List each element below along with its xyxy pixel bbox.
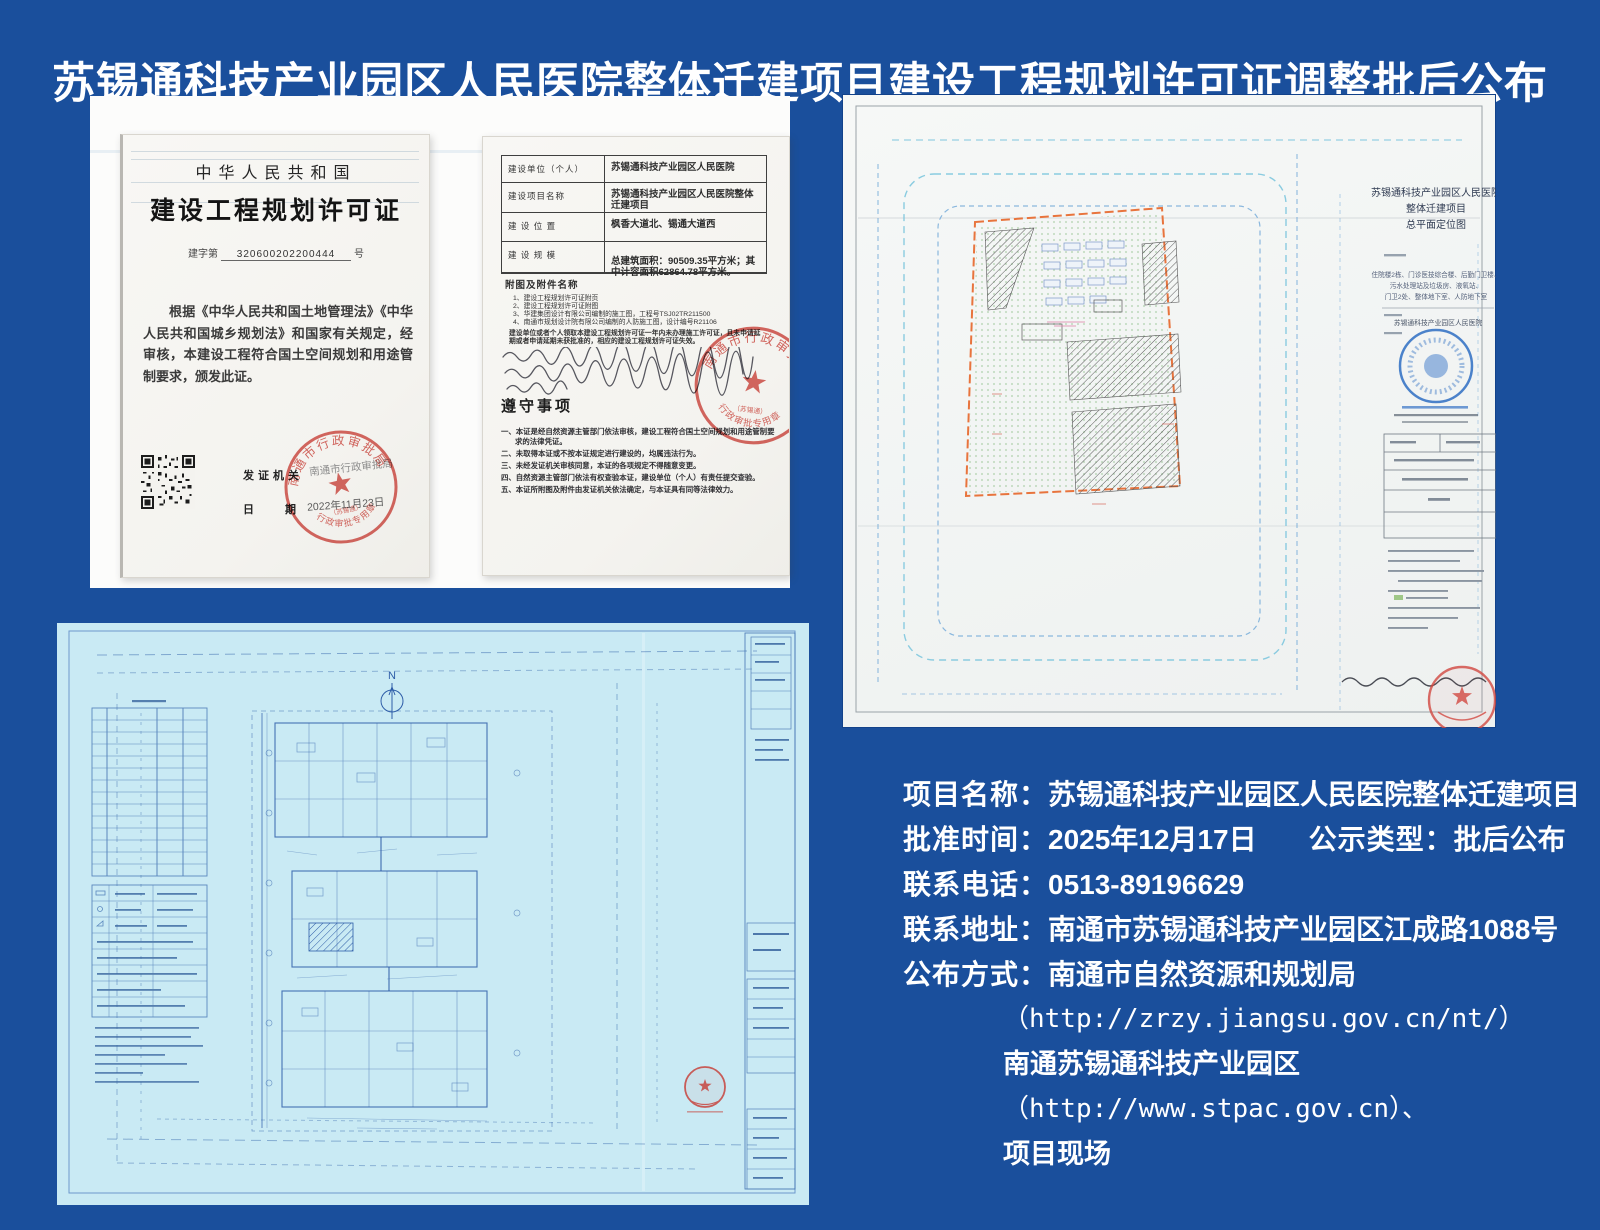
info-label: 公布方式：: [903, 959, 1048, 990]
svg-text:行政审批专用章: 行政审批专用章: [313, 498, 381, 534]
row-label: 建设单位（个人）: [502, 156, 605, 182]
plan-desc-line: 门卫2处、整体地下室、人防地下室: [1385, 292, 1488, 301]
svg-text:行政审批专用章: 行政审批专用章: [714, 400, 784, 433]
certificate-country: 中华人民共和国: [123, 159, 429, 183]
certificate-cover-page: 中华人民共和国 建设工程规划许可证 建字第 320600202200444 号 …: [120, 134, 430, 578]
table-row: 建 设 位 置 枫香大道北、锡通大道西: [502, 213, 766, 242]
north-arrow-icon: N: [381, 670, 403, 719]
info-label: 项目名称：: [903, 779, 1048, 810]
approval-stamp-icon: [685, 1067, 725, 1113]
plan-title-line: 苏锡通科技产业园区人民医院: [1371, 186, 1496, 199]
certificate-body-text: 根据《中华人民共和国土地管理法》《中华人民共和国城乡规划法》和国家有关规定，经审…: [143, 301, 413, 387]
info-value: 2025年12月17日: [1048, 824, 1257, 855]
seal-bottom-text: 行政审批专用章: [313, 498, 381, 534]
row-label: 建 设 位 置: [502, 213, 605, 241]
row-label: 建设项目名称: [502, 183, 605, 212]
info-row-address: 联系地址：南通市苏锡通科技产业园区江成路1088号: [903, 907, 1483, 952]
publish-url-stpac[interactable]: （http://www.stpac.gov.cn）、: [1003, 1087, 1483, 1132]
table-row: 建设项目名称 苏锡通科技产业园区人民医院整体迁建项目: [502, 183, 766, 213]
info-value: 0513-89196629: [1048, 869, 1244, 900]
certificate-number: 320600202200444: [221, 249, 351, 261]
road-dashes: [97, 651, 757, 1169]
permit-certificate-scan: 中华人民共和国 建设工程规划许可证 建字第 320600202200444 号 …: [90, 96, 790, 588]
official-seal-icon: 南通市行政审批局 行政审批专用章 （苏锡通）: [270, 416, 412, 558]
rule-item: 五、本证所附图及附件由发证机关依法确定，与本证具有同等法律效力。: [501, 485, 775, 495]
site-buildings: [968, 212, 1181, 504]
certificate-form-page: 建设单位（个人） 苏锡通科技产业园区人民医院 建设项目名称 苏锡通科技产业园区人…: [482, 136, 790, 576]
rules-title: 遵守事项: [501, 395, 573, 416]
info-label: 批准时间：: [903, 824, 1048, 855]
certificate-number-prefix: 建字第: [188, 249, 218, 260]
permit-table: 建设单位（个人） 苏锡通科技产业园区人民医院 建设项目名称 苏锡通科技产业园区人…: [501, 155, 767, 274]
review-stamp-icon: [1394, 330, 1478, 423]
scan-fold-line: [642, 633, 645, 1191]
info-label: 联系电话：: [903, 869, 1048, 900]
certificate-number-suffix: 号: [354, 249, 364, 260]
publish-site-field: 项目现场: [1003, 1132, 1483, 1177]
attachments-label: 附图及附件名称: [505, 277, 579, 291]
ruled-line: [131, 151, 419, 152]
site-plan-scan: 苏锡通科技产业园区人民医院 整体迁建项目 总平面定位图 住院楼2栋、门诊医技综合…: [842, 94, 1496, 728]
plan-title-block: 苏锡通科技产业园区人民医院 整体迁建项目 总平面定位图 住院楼2栋、门诊医技综合…: [1342, 186, 1496, 728]
plan-title-line: 总平面定位图: [1406, 218, 1466, 231]
attachment-item: 1、建设工程规划许可证附页: [513, 295, 775, 303]
blueprint-title-block: [745, 633, 795, 1189]
sheet-frame: [69, 631, 795, 1193]
certificate-number-line: 建字第 320600202200444 号: [123, 245, 429, 260]
announcement-info: 项目名称：苏锡通科技产业园区人民医院整体迁建项目 批准时间：2025年12月17…: [903, 772, 1483, 1177]
row-label: 建 设 规 模: [502, 242, 605, 272]
plan-unit: 苏锡通科技产业园区人民医院: [1394, 318, 1483, 327]
site-plan-drawing: 苏锡通科技产业园区人民医院 整体迁建项目 总平面定位图 住院楼2栋、门诊医技综合…: [842, 94, 1496, 728]
row-value: 总建筑面积：90509.35平方米；其中计容面积62864.78平方米。: [605, 242, 766, 272]
official-seal-icon: 南通市行政审批局 行政审批专用章 （苏锡通）: [683, 315, 790, 456]
seal-bottom-text: 行政审批专用章: [714, 400, 784, 433]
legend-green-swatch: [1394, 595, 1403, 600]
seal-sub-text: （苏锡通）: [733, 403, 768, 417]
table-row: 建设单位（个人） 苏锡通科技产业园区人民医院: [502, 156, 766, 183]
rule-item: 三、未经发证机关审核同意，本证的各项规定不得随意变更。: [501, 461, 775, 471]
info-row-approval-date: 批准时间：2025年12月17日公示类型：批后公布: [903, 817, 1483, 862]
rule-item: 四、自然资源主管部门依法有权查验本证，建设单位（个人）有责任提交查验。: [501, 473, 775, 483]
info-value: 南通市苏锡通科技产业园区江成路1088号: [1048, 914, 1558, 945]
info-row-publish-method: 公布方式：南通市自然资源和规划局: [903, 952, 1483, 997]
blueprint-scan: N: [57, 623, 809, 1205]
info-value: 苏锡通科技产业园区人民医院整体迁建项目: [1048, 779, 1580, 810]
indicator-table: [92, 700, 207, 876]
publish-url-zrzy[interactable]: （http://zrzy.jiangsu.gov.cn/nt/）: [1003, 997, 1483, 1042]
approval-stamp-icon: [1429, 667, 1495, 728]
publish-site-name: 南通苏锡通科技产业园区: [1003, 1042, 1483, 1087]
info-label: 联系地址：: [903, 914, 1048, 945]
blueprint-drawing: N: [57, 623, 809, 1205]
north-label: N: [388, 670, 396, 682]
plan-title-line: 整体迁建项目: [1406, 202, 1466, 215]
qr-code-icon: [141, 455, 195, 509]
info-value: 批后公布: [1454, 824, 1566, 855]
plan-desc-line: 住院楼2栋、门诊医技综合楼、后勤门卫楼、: [1372, 270, 1496, 279]
info-value: 南通市自然资源和规划局: [1048, 959, 1356, 990]
row-value: 苏锡通科技产业园区人民医院整体迁建项目: [605, 183, 766, 212]
attachment-item: 2、建设工程规划许可证附图: [513, 303, 775, 311]
info-row-project-name: 项目名称：苏锡通科技产业园区人民医院整体迁建项目: [903, 772, 1483, 817]
row-value: 苏锡通科技产业园区人民医院: [605, 156, 766, 182]
building-plan: [252, 711, 552, 1131]
blueprint-notes: [95, 1027, 203, 1083]
certificate-title: 建设工程规划许可证: [123, 191, 429, 227]
info-row-phone: 联系电话：0513-89196629: [903, 862, 1483, 907]
plan-desc-line: 污水处理站及垃圾房、液氧站、: [1390, 281, 1482, 290]
table-row: 建 设 规 模 总建筑面积：90509.35平方米；其中计容面积62864.78…: [502, 242, 766, 273]
row-value: 枫香大道北、锡通大道西: [605, 213, 766, 241]
legend-box: [92, 885, 207, 1017]
attachment-item: 3、华建集团设计有限公司编制的施工图，工程号TSJ02TR211500: [513, 311, 775, 319]
rule-item: 二、未取得本证或不按本证规定进行建设的，均属违法行为。: [501, 449, 775, 459]
info-label: 公示类型：: [1309, 824, 1454, 855]
